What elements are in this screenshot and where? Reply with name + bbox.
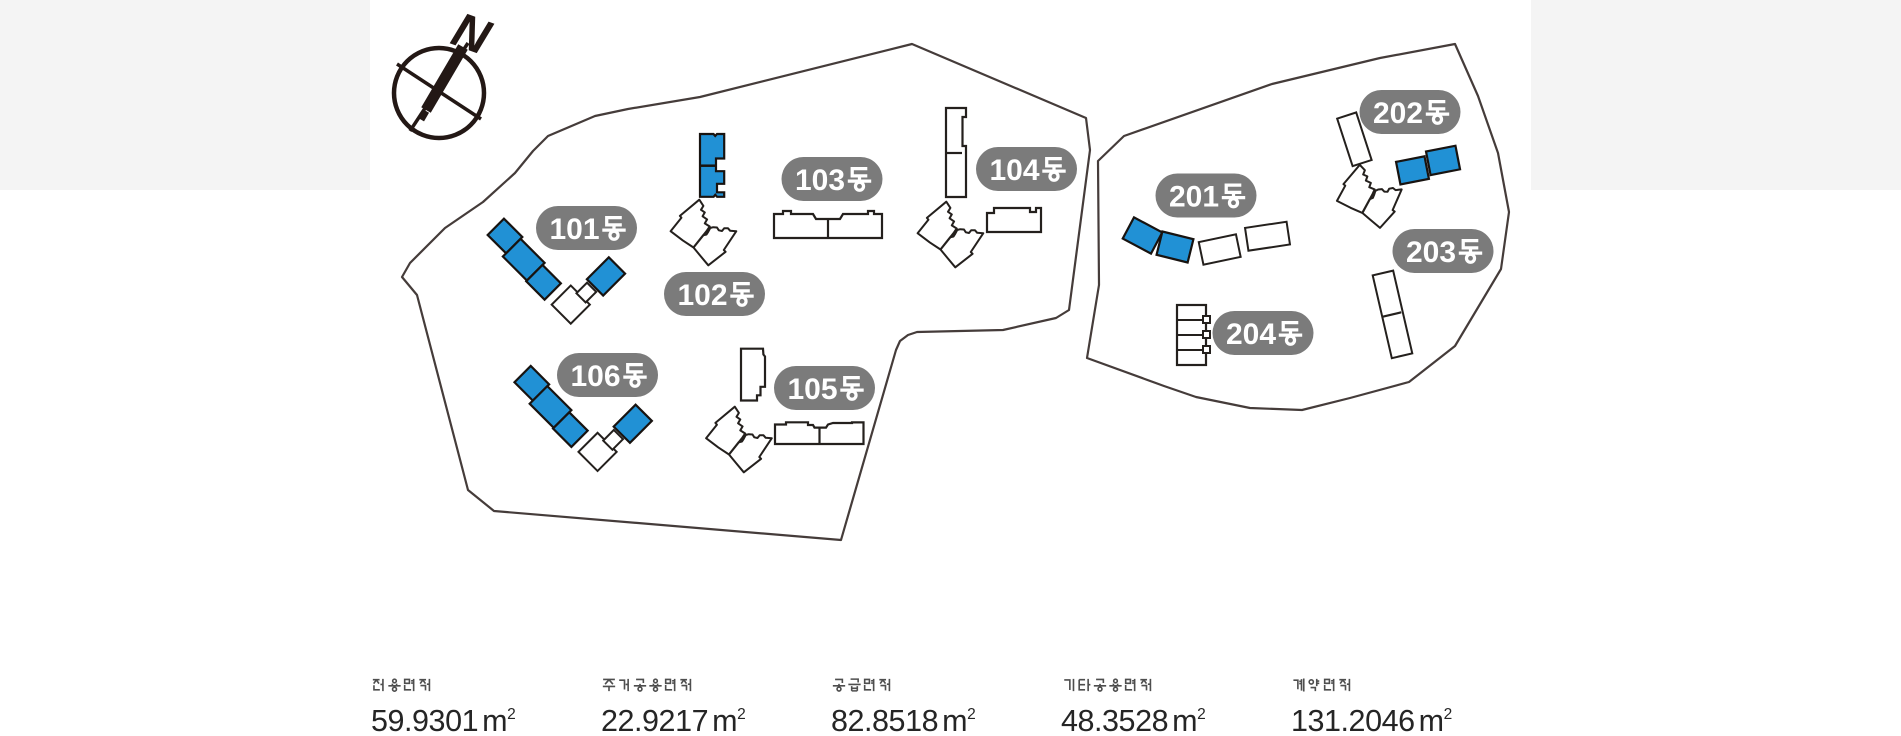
svg-text:102: 102 <box>678 279 728 312</box>
svg-text:131.2046m2: 131.2046m2 <box>1291 704 1452 736</box>
svg-text:106: 106 <box>571 360 621 393</box>
svg-text:82.8518m2: 82.8518m2 <box>831 704 975 736</box>
svg-text:203: 203 <box>1406 236 1456 269</box>
svg-text:48.3528m2: 48.3528m2 <box>1061 704 1205 736</box>
svg-text:22.9217m2: 22.9217m2 <box>601 704 745 736</box>
svg-text:201: 201 <box>1169 181 1219 214</box>
svg-text:59.9301m2: 59.9301m2 <box>371 704 515 736</box>
svg-text:103: 103 <box>795 164 845 197</box>
svg-text:101: 101 <box>550 213 600 246</box>
svg-text:202: 202 <box>1373 97 1423 130</box>
svg-text:104: 104 <box>990 154 1040 187</box>
svg-text:204: 204 <box>1226 318 1276 351</box>
svg-text:105: 105 <box>788 373 838 406</box>
